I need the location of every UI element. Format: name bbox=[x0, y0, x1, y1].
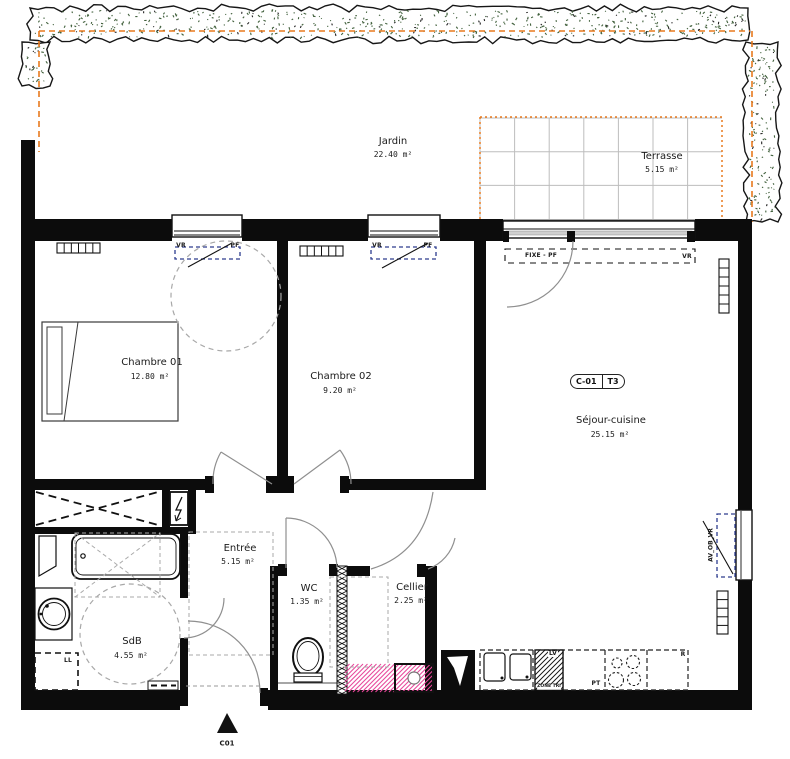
cellier-area: 2.25 m² bbox=[394, 597, 428, 605]
floor-plan-drawing bbox=[0, 0, 790, 759]
zone-tri-label: ZONE TRI bbox=[537, 685, 561, 690]
furniture bbox=[35, 241, 688, 692]
ch02-window-vr: VR bbox=[372, 243, 382, 249]
unit-type: T3 bbox=[602, 375, 624, 388]
property-boundary bbox=[39, 31, 752, 222]
unit-code: C-01 bbox=[571, 375, 602, 388]
sejour-area: 25.15 m² bbox=[591, 431, 630, 439]
sejour-window-fixe: FIXE - PF bbox=[525, 253, 557, 259]
floor-plan: Jardin 22.40 m² Terrasse 5.15 m² Chambre… bbox=[0, 0, 790, 759]
terrace-paving bbox=[480, 117, 722, 219]
worktop-label: PT bbox=[592, 681, 601, 687]
terrasse-area: 5.15 m² bbox=[645, 166, 679, 174]
jardin-label: Jardin bbox=[379, 137, 407, 147]
side-window-label: AV_OB_VR bbox=[708, 528, 715, 562]
terrasse-label: Terrasse bbox=[641, 152, 682, 162]
ch01-window-vr: VR bbox=[176, 243, 186, 249]
windows bbox=[172, 215, 752, 580]
section-marker-label: C01 bbox=[220, 741, 235, 748]
chambre02-area: 9.20 m² bbox=[323, 387, 357, 395]
chambre01-label: Chambre 01 bbox=[121, 358, 182, 368]
hedge bbox=[18, 4, 782, 222]
entree-label: Entrée bbox=[224, 544, 257, 554]
fridge-label: R bbox=[681, 652, 686, 658]
sdb-area: 4.55 m² bbox=[114, 652, 148, 660]
entree-area: 5.15 m² bbox=[221, 558, 255, 566]
wc-label: WC bbox=[301, 584, 318, 594]
jardin-area: 22.40 m² bbox=[374, 151, 413, 159]
door-swings bbox=[184, 241, 573, 693]
window-annotations bbox=[175, 243, 735, 577]
wc-area: 1.35 m² bbox=[290, 598, 324, 606]
dishwasher-label: LV bbox=[548, 651, 558, 657]
chambre01-area: 12.80 m² bbox=[131, 373, 170, 381]
chambre02-label: Chambre 02 bbox=[310, 372, 371, 382]
sdb-label: SdB bbox=[122, 637, 142, 647]
ch01-window-pf: PF bbox=[231, 243, 240, 249]
unit-tag: C-01 T3 bbox=[570, 374, 625, 389]
cellier-label: Cellier bbox=[396, 583, 428, 593]
section-marker bbox=[217, 713, 238, 733]
laundry-label: LL bbox=[64, 658, 72, 664]
sejour-label: Séjour-cuisine bbox=[576, 416, 646, 426]
sejour-window-vr: VR bbox=[682, 254, 692, 260]
ch02-window-pf: PF bbox=[424, 243, 433, 249]
